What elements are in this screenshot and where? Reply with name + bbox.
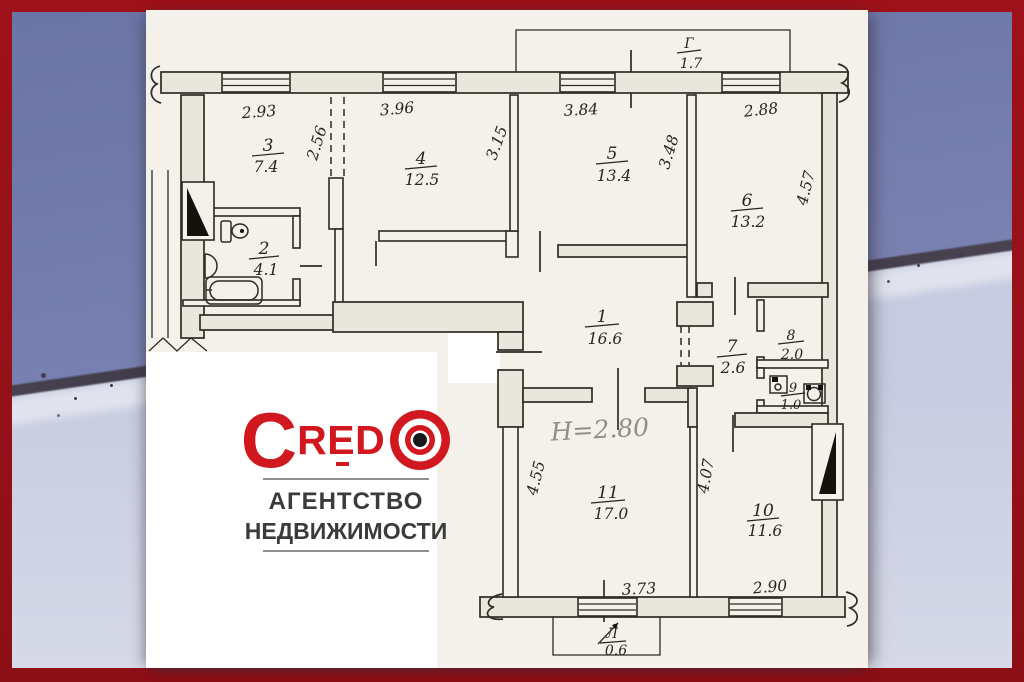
room-area: 13.2 [731,213,766,231]
room-area: 7.4 [254,158,279,176]
room-number: 6 [742,191,753,211]
balcony-top-outline [516,30,790,108]
room-label-5: 5 13.4 [596,144,631,185]
dim-4-57: 4.57 [793,169,819,208]
balcony-top-label: Г 1.7 [677,36,702,72]
window [729,598,782,616]
window [560,73,615,92]
balcony-letter: Г [683,36,694,52]
room-number: 11 [597,483,619,503]
balcony-bottom-label: Л 0.6 [600,626,627,659]
dim-2-56: 2.56 [303,124,331,163]
brand-letter-c: C [241,410,295,471]
floor-plan-scan: 3 7.4 4 12.5 5 13.4 6 13.2 2 [146,10,868,668]
agency-tagline-line1: АГЕНТСТВО [241,488,451,516]
window [222,73,290,92]
toilet-icon [221,221,248,242]
sink-icon [205,254,217,278]
ceiling-height-note: H=2.80 [549,412,650,446]
room-area: 16.6 [588,330,623,348]
room-label-4: 4 12.5 [405,149,440,189]
brand-word-wrap: RED [297,420,385,461]
room-number: 7 [727,337,738,357]
room-label-11: 11 17.0 [591,483,628,523]
balcony-letter: Л [605,626,618,642]
room-number: 2 [258,239,270,259]
floor-plan-drawing: 3 7.4 4 12.5 5 13.4 6 13.2 2 [146,10,868,668]
brand-word-red: RED [297,417,385,463]
room-number: 3 [263,136,274,156]
room-area: 13.4 [597,167,632,185]
room-number: 10 [752,501,774,521]
room-label-3: 3 7.4 [252,136,284,176]
room-area: 2.0 [780,347,803,363]
room-number: 4 [415,149,427,169]
credo-wordmark: C RED [241,409,451,471]
window [383,73,456,92]
dim-3-48: 3.48 [655,133,682,171]
credo-logo: C RED АГЕНТСТВО НЕДВИЖИМОСТИ [241,409,451,552]
room-label-6: 6 13.2 [731,191,766,231]
dim-2-90: 2.90 [751,577,788,598]
wall-speckles [12,12,15,15]
washbasin-icon [770,376,787,393]
room-area: 11.6 [748,522,783,540]
room-area: 2.6 [720,359,746,377]
room-area: 4.1 [253,261,279,279]
dim-2-93: 2.93 [240,102,277,122]
room-area: 1.0 [781,398,802,413]
window [578,598,637,616]
room-area: 12.5 [405,171,440,189]
dim-3-84: 3.84 [563,100,598,120]
room-label-8: 8 2.0 [778,328,804,363]
agency-flyer: 3 7.4 4 12.5 5 13.4 6 13.2 2 [0,0,1024,682]
room-number: 5 [607,144,618,164]
balcony-area: 0.6 [605,643,627,659]
room-label-7: 7 2.6 [717,337,747,377]
logo-divider-bottom [263,550,429,552]
room-number: 1 [597,307,608,327]
room-label-1: 1 16.6 [585,307,622,348]
bullseye-icon [389,409,451,471]
dim-2-88: 2.88 [742,99,779,121]
dim-4-55: 4.55 [523,459,549,498]
balcony-area: 1.7 [680,56,702,72]
dim-3-73: 3.73 [621,579,657,599]
dim-3-15: 3.15 [483,124,512,163]
room-label-2: 2 4.1 [249,239,279,279]
window [722,73,780,92]
room-area: 17.0 [594,505,629,523]
brand-underline-accent [336,462,349,466]
agency-tagline-line2: НЕДВИЖИМОСТИ [241,518,451,545]
room-label-10: 10 11.6 [747,501,782,540]
dim-3-96: 3.96 [379,99,415,120]
